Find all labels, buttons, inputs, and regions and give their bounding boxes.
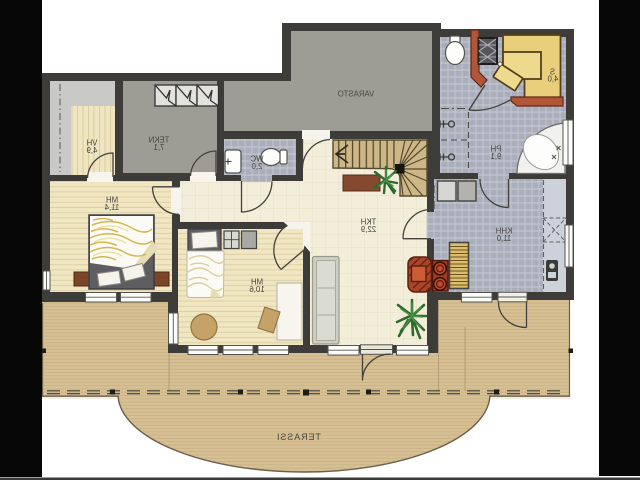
svg-text:2,0: 2,0 (251, 162, 263, 171)
svg-text:22,9: 22,9 (361, 225, 376, 234)
svg-text:4,0: 4,0 (547, 74, 559, 83)
svg-text:VARASTO: VARASTO (338, 90, 375, 99)
svg-text:4,9: 4,9 (87, 146, 98, 155)
svg-text:10,6: 10,6 (249, 285, 264, 294)
svg-text:11,4: 11,4 (104, 203, 119, 212)
svg-text:7,1: 7,1 (154, 143, 165, 152)
svg-text:TERASSI: TERASSI (276, 432, 321, 442)
svg-text:11,0: 11,0 (496, 234, 511, 243)
svg-text:9,1: 9,1 (491, 152, 502, 161)
